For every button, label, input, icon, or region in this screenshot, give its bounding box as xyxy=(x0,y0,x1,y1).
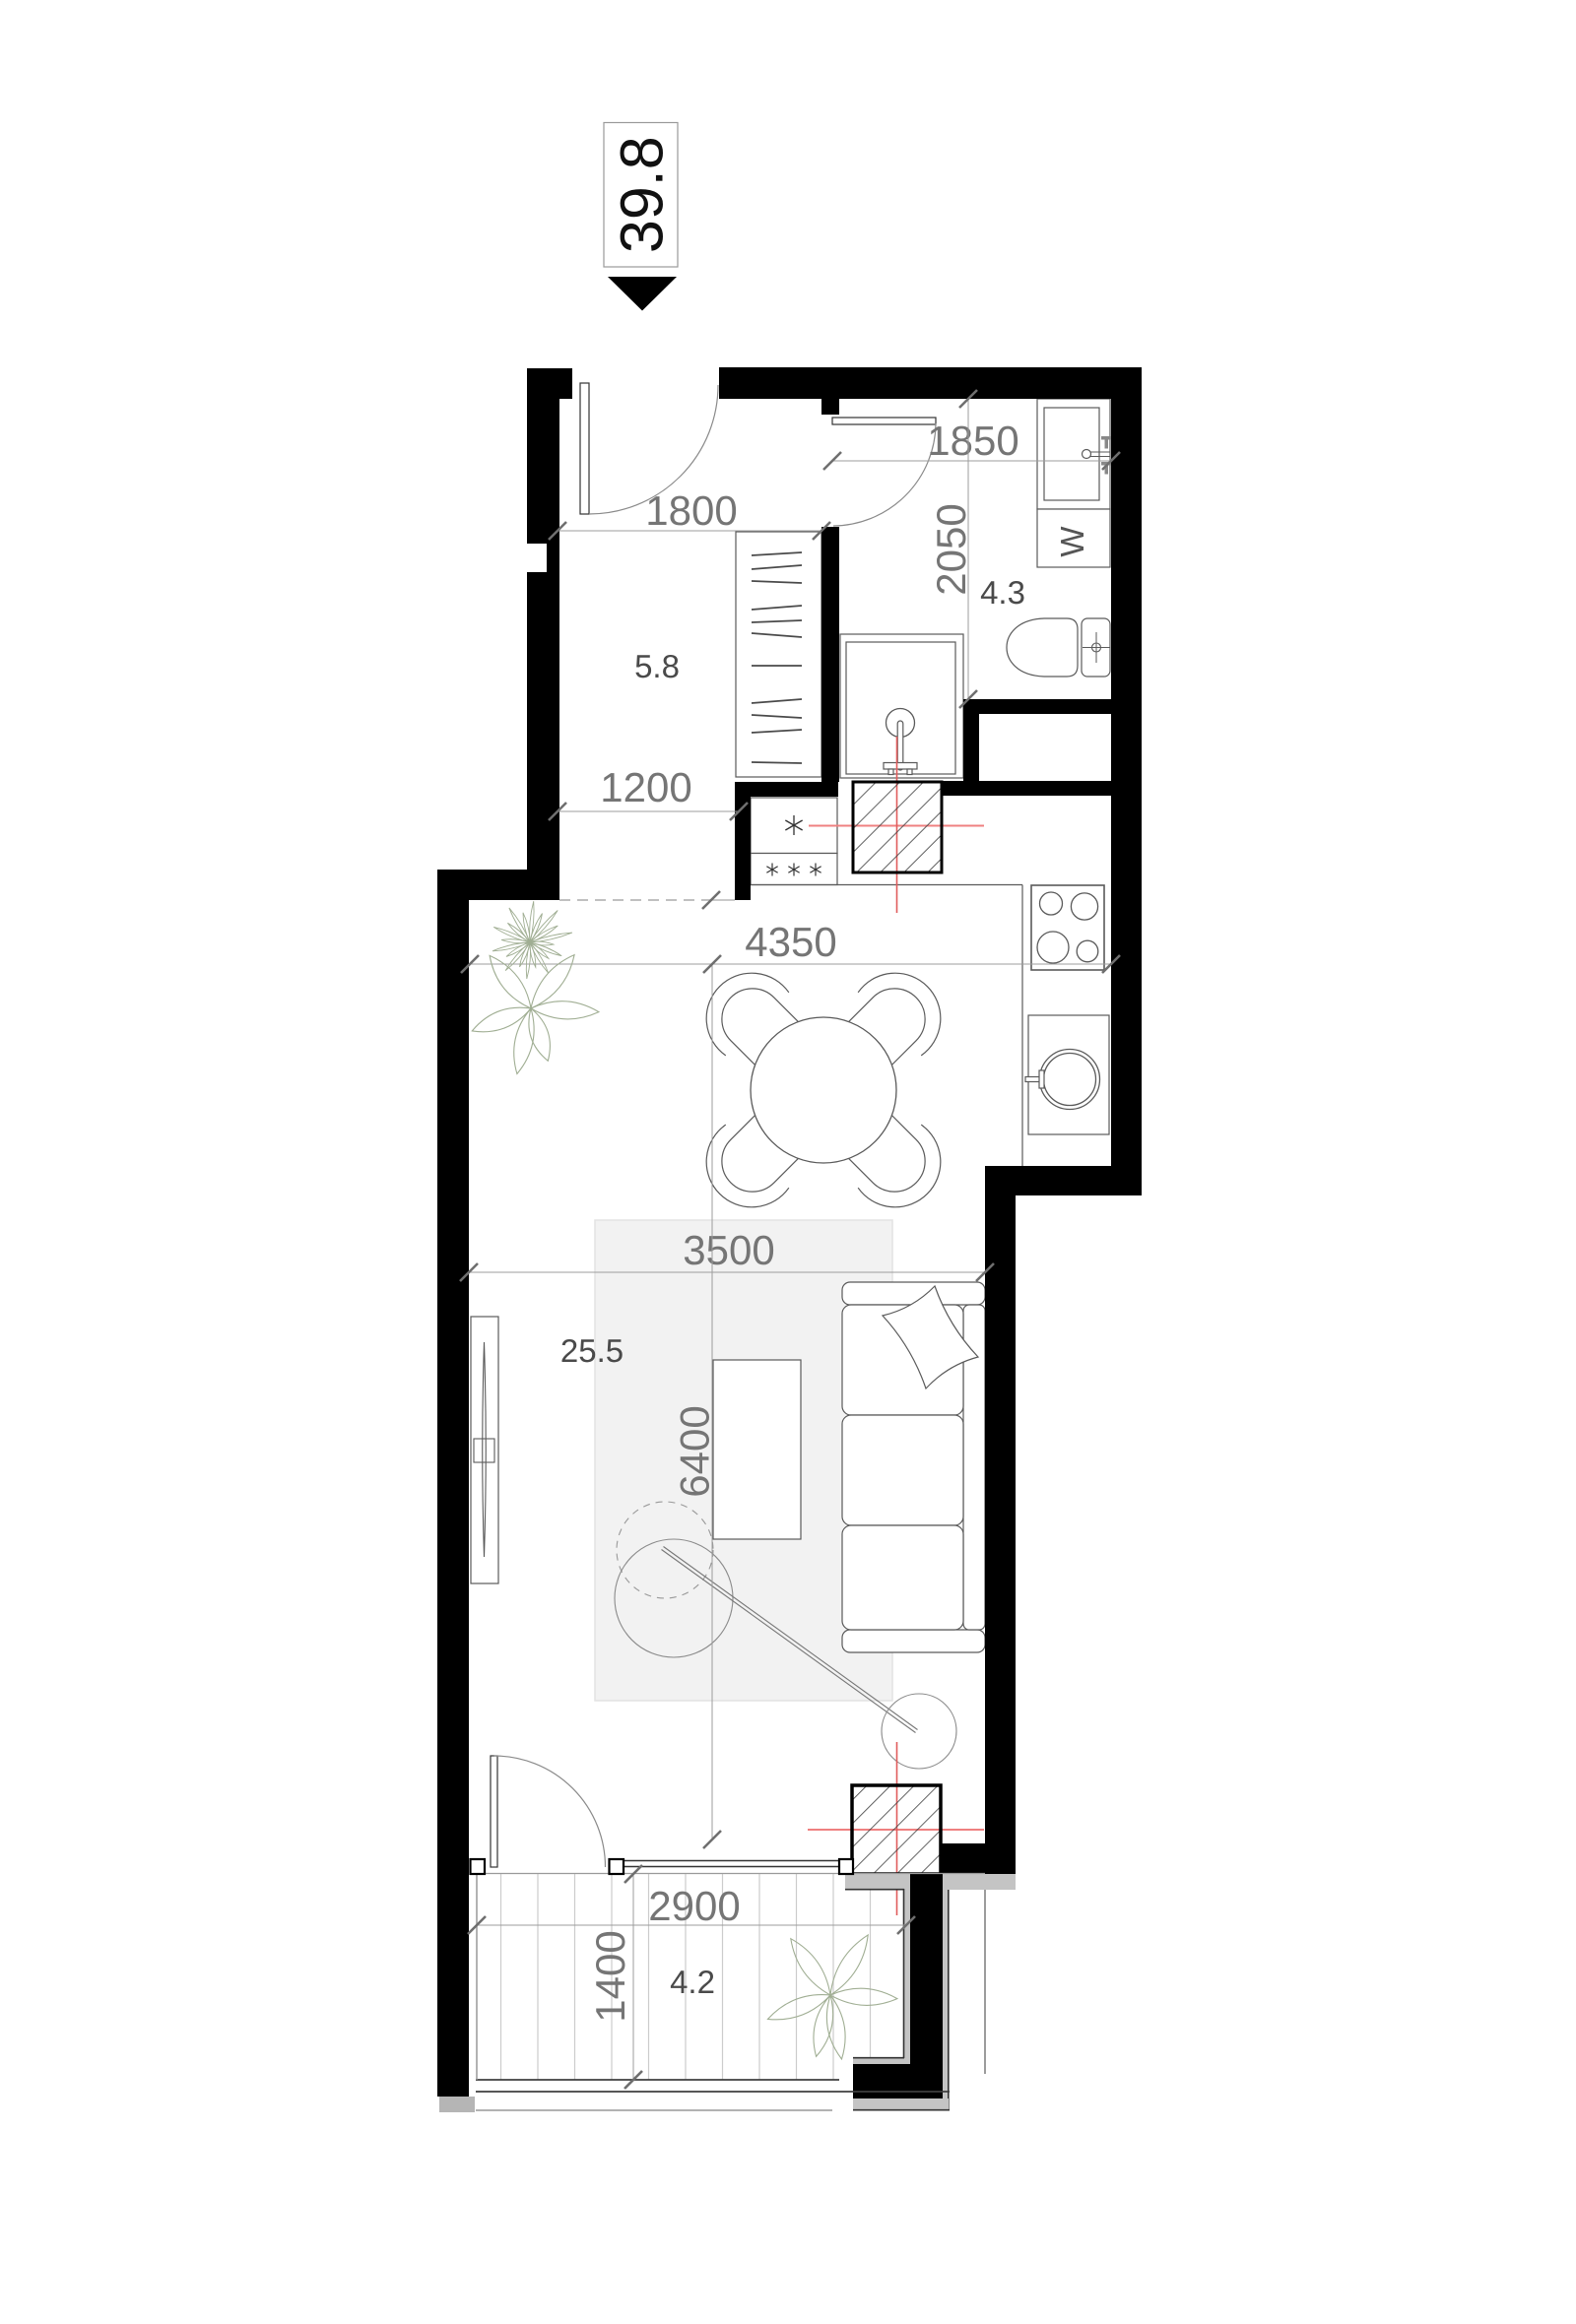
svg-text:2050: 2050 xyxy=(928,503,974,595)
svg-text:2900: 2900 xyxy=(648,1883,740,1929)
svg-text:W: W xyxy=(1054,526,1090,557)
svg-text:1400: 1400 xyxy=(587,1930,633,2022)
svg-text:6400: 6400 xyxy=(672,1405,718,1497)
svg-text:1850: 1850 xyxy=(927,418,1018,464)
svg-text:4.3: 4.3 xyxy=(980,574,1025,611)
svg-text:39.8: 39.8 xyxy=(609,136,676,253)
svg-text:3500: 3500 xyxy=(683,1227,774,1273)
svg-text:4350: 4350 xyxy=(745,919,836,965)
svg-text:1800: 1800 xyxy=(645,487,737,534)
svg-text:1200: 1200 xyxy=(600,764,691,810)
svg-text:5.8: 5.8 xyxy=(634,648,680,684)
svg-text:4.2: 4.2 xyxy=(670,1964,715,2000)
svg-text:25.5: 25.5 xyxy=(560,1332,624,1369)
